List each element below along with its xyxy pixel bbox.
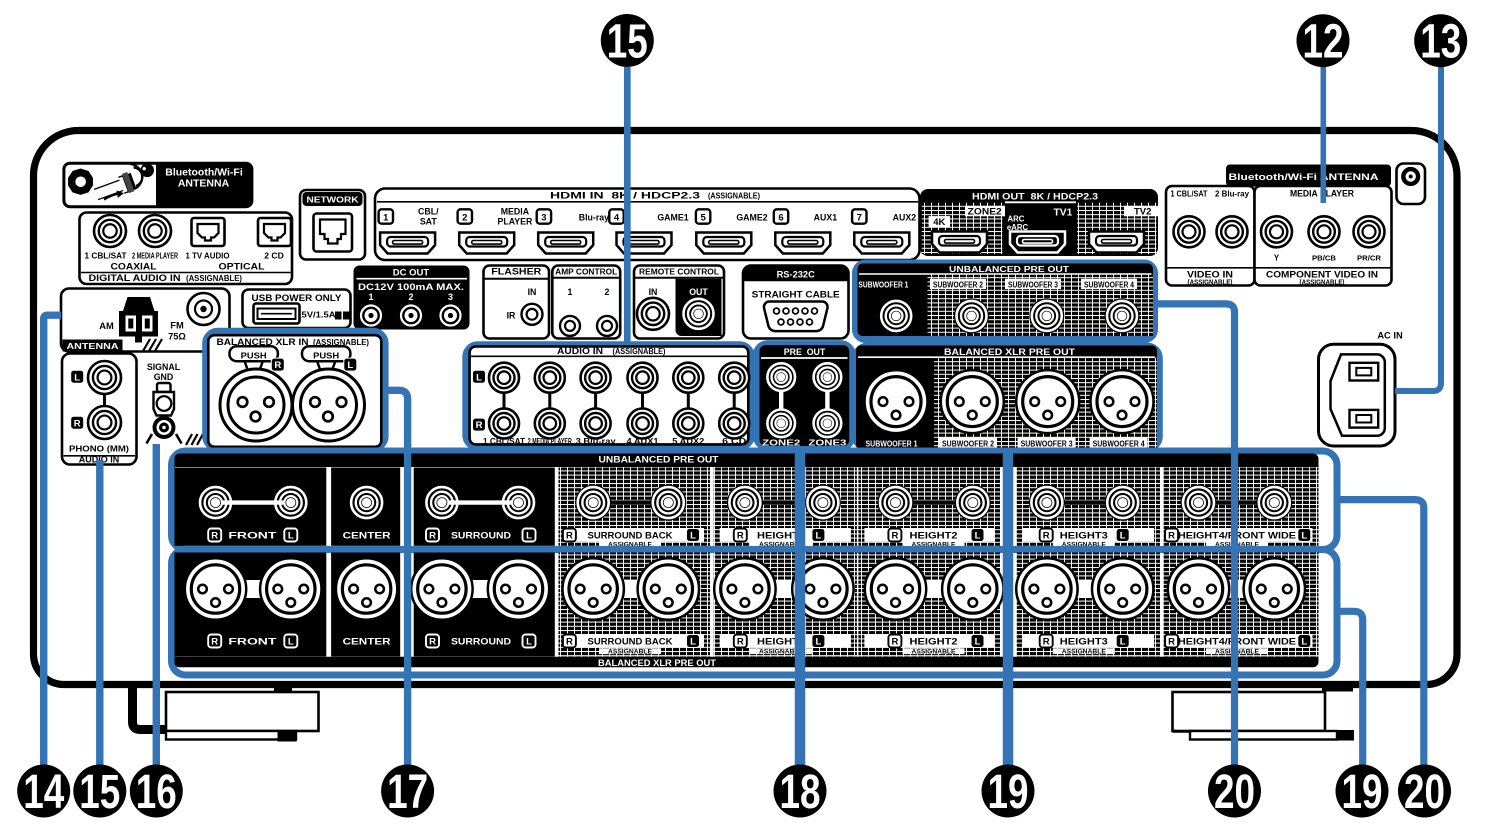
- svg-text:3: 3: [541, 212, 546, 223]
- svg-text:PLAYER: PLAYER: [497, 216, 533, 226]
- svg-text:2 CD: 2 CD: [264, 251, 284, 261]
- svg-text:VIDEO IN: VIDEO IN: [1187, 269, 1233, 279]
- svg-text:PB/CB: PB/CB: [1312, 253, 1336, 262]
- svg-text:CENTER: CENTER: [343, 531, 391, 542]
- svg-text:L: L: [975, 531, 981, 542]
- svg-text:ZONE3: ZONE3: [808, 438, 846, 448]
- svg-text:COAXIAL: COAXIAL: [111, 262, 157, 273]
- svg-text:L: L: [1301, 637, 1307, 648]
- svg-text:2: 2: [462, 212, 467, 223]
- svg-text:R: R: [74, 418, 81, 429]
- svg-text:TV2: TV2: [1134, 206, 1151, 217]
- svg-text:HDMI OUT 8K / HDCP2.3: HDMI OUT 8K / HDCP2.3: [972, 191, 1098, 202]
- svg-text:L: L: [1120, 531, 1126, 542]
- svg-text:SUBWOOFER 2: SUBWOOFER 2: [933, 281, 983, 290]
- svg-text:L: L: [288, 531, 294, 542]
- svg-text:SURROUND: SURROUND: [451, 531, 511, 542]
- svg-text:Y: Y: [1274, 253, 1280, 262]
- svg-text:R: R: [1168, 531, 1175, 542]
- svg-text:SUBWOOFER 3: SUBWOOFER 3: [1021, 439, 1073, 448]
- svg-text:4 AUX1: 4 AUX1: [627, 436, 659, 446]
- svg-text:(ASSIGNABLE): (ASSIGNABLE): [708, 191, 760, 200]
- svg-text:L: L: [690, 637, 696, 648]
- svg-text:1 CBL/SAT: 1 CBL/SAT: [483, 436, 526, 446]
- svg-text:15: 15: [79, 766, 120, 819]
- svg-text:UNBALANCED PRE OUT: UNBALANCED PRE OUT: [949, 264, 1070, 274]
- svg-text:SUBWOOFER 1: SUBWOOFER 1: [866, 439, 918, 448]
- svg-text:ANTENNA: ANTENNA: [178, 178, 230, 190]
- svg-text:MEDIA: MEDIA: [501, 206, 530, 216]
- svg-text:PUSH: PUSH: [313, 351, 339, 360]
- svg-text:ASSIGNABLE: ASSIGNABLE: [912, 648, 957, 655]
- svg-text:12: 12: [1303, 16, 1344, 69]
- svg-text:14: 14: [23, 766, 64, 819]
- svg-text:L: L: [288, 637, 294, 648]
- svg-text:L: L: [1120, 637, 1126, 648]
- svg-text:FRONT: FRONT: [228, 531, 276, 542]
- svg-text:R: R: [1043, 637, 1050, 648]
- svg-text:2 MEDIA PLAYER: 2 MEDIA PLAYER: [528, 436, 572, 446]
- svg-text:BALANCED XLR PRE OUT: BALANCED XLR PRE OUT: [598, 658, 717, 668]
- svg-text:ZONE2: ZONE2: [968, 206, 1002, 216]
- svg-text:1: 1: [568, 287, 573, 297]
- svg-text:FLASHER: FLASHER: [491, 267, 542, 277]
- svg-text:L: L: [476, 372, 482, 383]
- svg-text:1 CBL/SAT: 1 CBL/SAT: [1171, 190, 1208, 199]
- svg-text:Bluetooth/Wi-Fi ANTENNA: Bluetooth/Wi-Fi ANTENNA: [1229, 172, 1379, 182]
- svg-text:ARC: ARC: [1008, 214, 1025, 223]
- svg-text:GAME2: GAME2: [736, 212, 767, 222]
- svg-text:2 MEDIA PLAYER: 2 MEDIA PLAYER: [132, 251, 179, 261]
- svg-text:19: 19: [988, 766, 1029, 819]
- svg-text:Blu-ray: Blu-ray: [579, 212, 609, 222]
- svg-text:AMP CONTROL: AMP CONTROL: [555, 268, 617, 277]
- svg-text:HEIGHT3: HEIGHT3: [1060, 531, 1108, 542]
- svg-text:PR/CR: PR/CR: [1357, 253, 1382, 262]
- svg-text:AUX1: AUX1: [814, 212, 838, 222]
- svg-text:SIGNAL: SIGNAL: [147, 362, 181, 372]
- svg-text:R: R: [211, 531, 218, 542]
- svg-text:OUT: OUT: [689, 287, 708, 297]
- svg-text:(ASSIGNABLE): (ASSIGNABLE): [613, 347, 666, 356]
- svg-text:1: 1: [368, 292, 373, 302]
- svg-text:GAME1: GAME1: [657, 212, 688, 222]
- svg-text:6 CD: 6 CD: [722, 436, 746, 446]
- svg-text:(ASSIGNABLE): (ASSIGNABLE): [186, 274, 242, 283]
- svg-text:20: 20: [1404, 766, 1445, 819]
- svg-text:AUDIO IN: AUDIO IN: [557, 346, 603, 356]
- svg-text:2 Blu-ray: 2 Blu-ray: [1215, 190, 1250, 199]
- svg-text:AM: AM: [99, 321, 114, 331]
- svg-text:BALANCED XLR PRE OUT: BALANCED XLR PRE OUT: [944, 347, 1076, 357]
- svg-text:20: 20: [1214, 766, 1255, 819]
- svg-text:DIGITAL AUDIO IN: DIGITAL AUDIO IN: [89, 273, 181, 284]
- svg-text:HEIGHT2: HEIGHT2: [910, 637, 958, 648]
- svg-text:SURROUND BACK: SURROUND BACK: [588, 531, 673, 542]
- svg-text:ASSIGNABLE: ASSIGNABLE: [1062, 648, 1107, 655]
- svg-text:STRAIGHT CABLE: STRAIGHT CABLE: [752, 290, 840, 300]
- svg-text:1 TV AUDIO: 1 TV AUDIO: [186, 251, 230, 261]
- svg-text:HEIGHT3: HEIGHT3: [1060, 637, 1108, 648]
- svg-text:SAT: SAT: [420, 216, 438, 226]
- svg-text:1: 1: [383, 212, 389, 223]
- svg-text:R: R: [429, 531, 436, 542]
- svg-text:6: 6: [778, 212, 783, 223]
- svg-text:2: 2: [408, 292, 413, 302]
- svg-text:R: R: [429, 637, 436, 648]
- svg-text:(ASSIGNABLE): (ASSIGNABLE): [1188, 279, 1233, 286]
- svg-text:R: R: [274, 360, 281, 371]
- svg-text:FRONT: FRONT: [228, 637, 276, 648]
- svg-text:4: 4: [614, 212, 620, 223]
- svg-text:75Ω: 75Ω: [168, 332, 186, 342]
- svg-text:R: R: [891, 637, 898, 648]
- svg-text:R: R: [1043, 531, 1050, 542]
- svg-text:7: 7: [857, 212, 862, 223]
- svg-text:L: L: [526, 637, 532, 648]
- svg-text:R: R: [476, 420, 483, 431]
- svg-text:ANTENNA: ANTENNA: [67, 341, 119, 351]
- svg-text:L: L: [815, 531, 821, 542]
- svg-text:CBL/: CBL/: [418, 206, 439, 216]
- svg-text:DC12V 100mA MAX.: DC12V 100mA MAX.: [358, 282, 464, 292]
- svg-text:R: R: [1168, 637, 1175, 648]
- svg-text:GND: GND: [154, 372, 174, 382]
- svg-text:SUBWOOFER 4: SUBWOOFER 4: [1093, 439, 1145, 448]
- svg-text:PUSH: PUSH: [241, 351, 267, 360]
- svg-text:1 CBL/SAT: 1 CBL/SAT: [85, 251, 128, 261]
- svg-text:R: R: [737, 531, 744, 542]
- svg-text:15: 15: [607, 16, 648, 69]
- svg-text:5 AUX2: 5 AUX2: [672, 436, 704, 446]
- svg-text:(ASSIGNABLE): (ASSIGNABLE): [1300, 279, 1345, 286]
- svg-text:L: L: [975, 637, 981, 648]
- svg-text:ASSIGNABLE: ASSIGNABLE: [608, 648, 653, 655]
- svg-text:IR: IR: [507, 310, 516, 320]
- svg-text:PHONO (MM): PHONO (MM): [69, 444, 129, 454]
- svg-text:R: R: [566, 637, 573, 648]
- svg-text:ZONE2: ZONE2: [762, 438, 800, 448]
- svg-text:SURROUND: SURROUND: [451, 637, 511, 648]
- svg-text:COMPONENT VIDEO IN: COMPONENT VIDEO IN: [1266, 269, 1378, 279]
- svg-text:IN: IN: [649, 287, 658, 297]
- svg-text:DC OUT: DC OUT: [393, 267, 430, 278]
- svg-text:UNBALANCED PRE OUT: UNBALANCED PRE OUT: [599, 455, 720, 465]
- svg-text:5V/1.5A: 5V/1.5A: [302, 310, 336, 320]
- svg-text:SUBWOOFER 2: SUBWOOFER 2: [942, 439, 994, 448]
- svg-text:19: 19: [1342, 766, 1383, 819]
- svg-text:R: R: [891, 531, 898, 542]
- svg-text:17: 17: [387, 766, 428, 819]
- svg-text:SUBWOOFER 1: SUBWOOFER 1: [858, 281, 908, 290]
- svg-text:CENTER: CENTER: [343, 637, 391, 648]
- svg-text:3 Blu-ray: 3 Blu-ray: [576, 436, 616, 446]
- svg-text:R: R: [566, 531, 573, 542]
- svg-text:L: L: [74, 372, 80, 383]
- svg-text:SUBWOOFER 4: SUBWOOFER 4: [1084, 281, 1134, 290]
- svg-text:USB POWER ONLY: USB POWER ONLY: [252, 293, 342, 303]
- svg-text:REMOTE CONTROL: REMOTE CONTROL: [639, 268, 719, 277]
- svg-text:AUX2: AUX2: [893, 212, 917, 222]
- svg-text:18: 18: [780, 766, 821, 819]
- svg-text:13: 13: [1420, 16, 1461, 69]
- svg-text:16: 16: [136, 766, 177, 819]
- svg-text:R: R: [211, 637, 218, 648]
- svg-text:3: 3: [448, 292, 453, 302]
- svg-text:HEIGHT2: HEIGHT2: [910, 531, 958, 542]
- svg-text:5: 5: [700, 212, 706, 223]
- svg-text:L: L: [526, 531, 532, 542]
- svg-text:RS-232C: RS-232C: [777, 270, 816, 280]
- svg-text:L: L: [690, 531, 696, 542]
- svg-text:SUBWOOFER 3: SUBWOOFER 3: [1008, 281, 1058, 290]
- svg-text:PRE OUT: PRE OUT: [784, 347, 826, 357]
- svg-text:L: L: [815, 637, 821, 648]
- svg-text:L: L: [347, 360, 353, 371]
- svg-text:SURROUND BACK: SURROUND BACK: [588, 637, 673, 648]
- svg-text:TV1: TV1: [1054, 207, 1073, 218]
- svg-text:L: L: [1301, 531, 1307, 542]
- svg-text:FM: FM: [170, 321, 184, 331]
- svg-text:R: R: [737, 637, 744, 648]
- svg-text:NETWORK: NETWORK: [307, 195, 360, 205]
- svg-text:2: 2: [605, 287, 610, 297]
- svg-text:OPTICAL: OPTICAL: [219, 262, 265, 273]
- svg-text:AC IN: AC IN: [1377, 331, 1403, 341]
- svg-text:4K: 4K: [933, 217, 945, 228]
- svg-text:IN: IN: [528, 287, 537, 297]
